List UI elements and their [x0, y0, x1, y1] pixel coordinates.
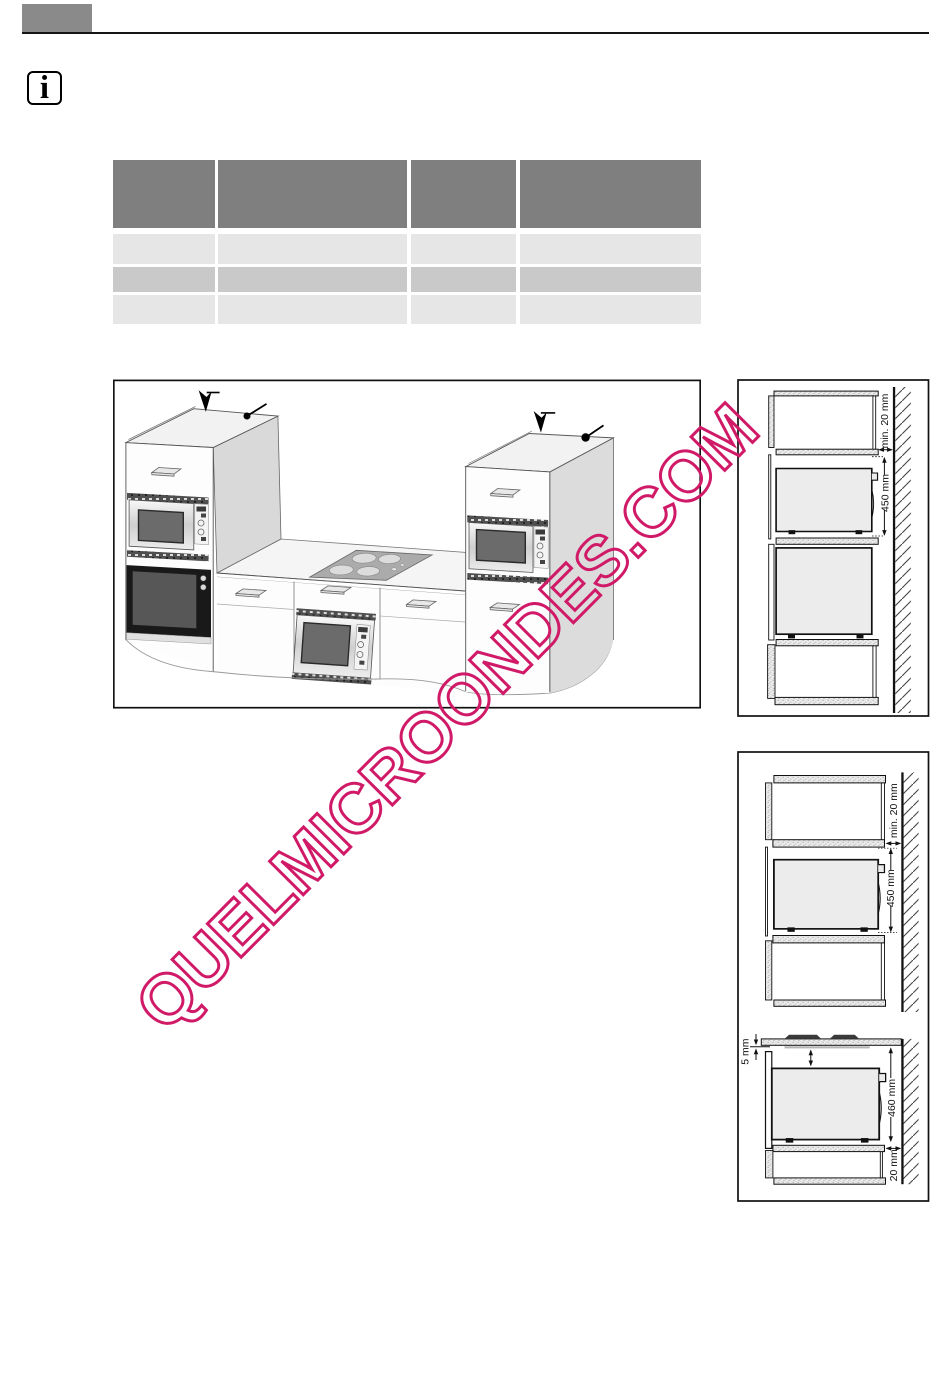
- svg-text:QUELMICROONDES.COM: QUELMICROONDES.COM: [121, 389, 773, 1044]
